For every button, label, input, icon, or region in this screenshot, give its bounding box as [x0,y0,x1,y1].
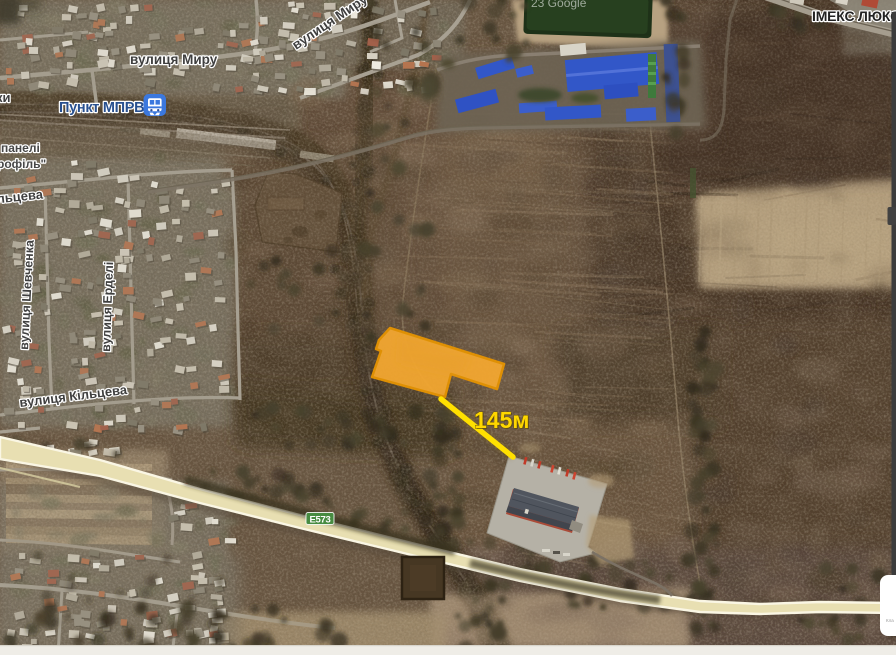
svg-text:Кла: Кла [886,618,894,623]
svg-text:145м: 145м [474,407,529,433]
svg-text:рофіль": рофіль" [0,157,46,171]
svg-text:Пункт МПРВ: Пункт МПРВ [59,100,144,116]
svg-text:23 Google: 23 Google [531,0,587,10]
svg-text:панелі: панелі [1,141,40,155]
svg-text:ІМЕКС ЛЮКС: ІМЕКС ЛЮКС [812,8,896,24]
svg-text:E573: E573 [310,514,331,525]
svg-text:вулиця Миру: вулиця Миру [130,52,218,67]
svg-text:ки: ки [0,90,11,105]
